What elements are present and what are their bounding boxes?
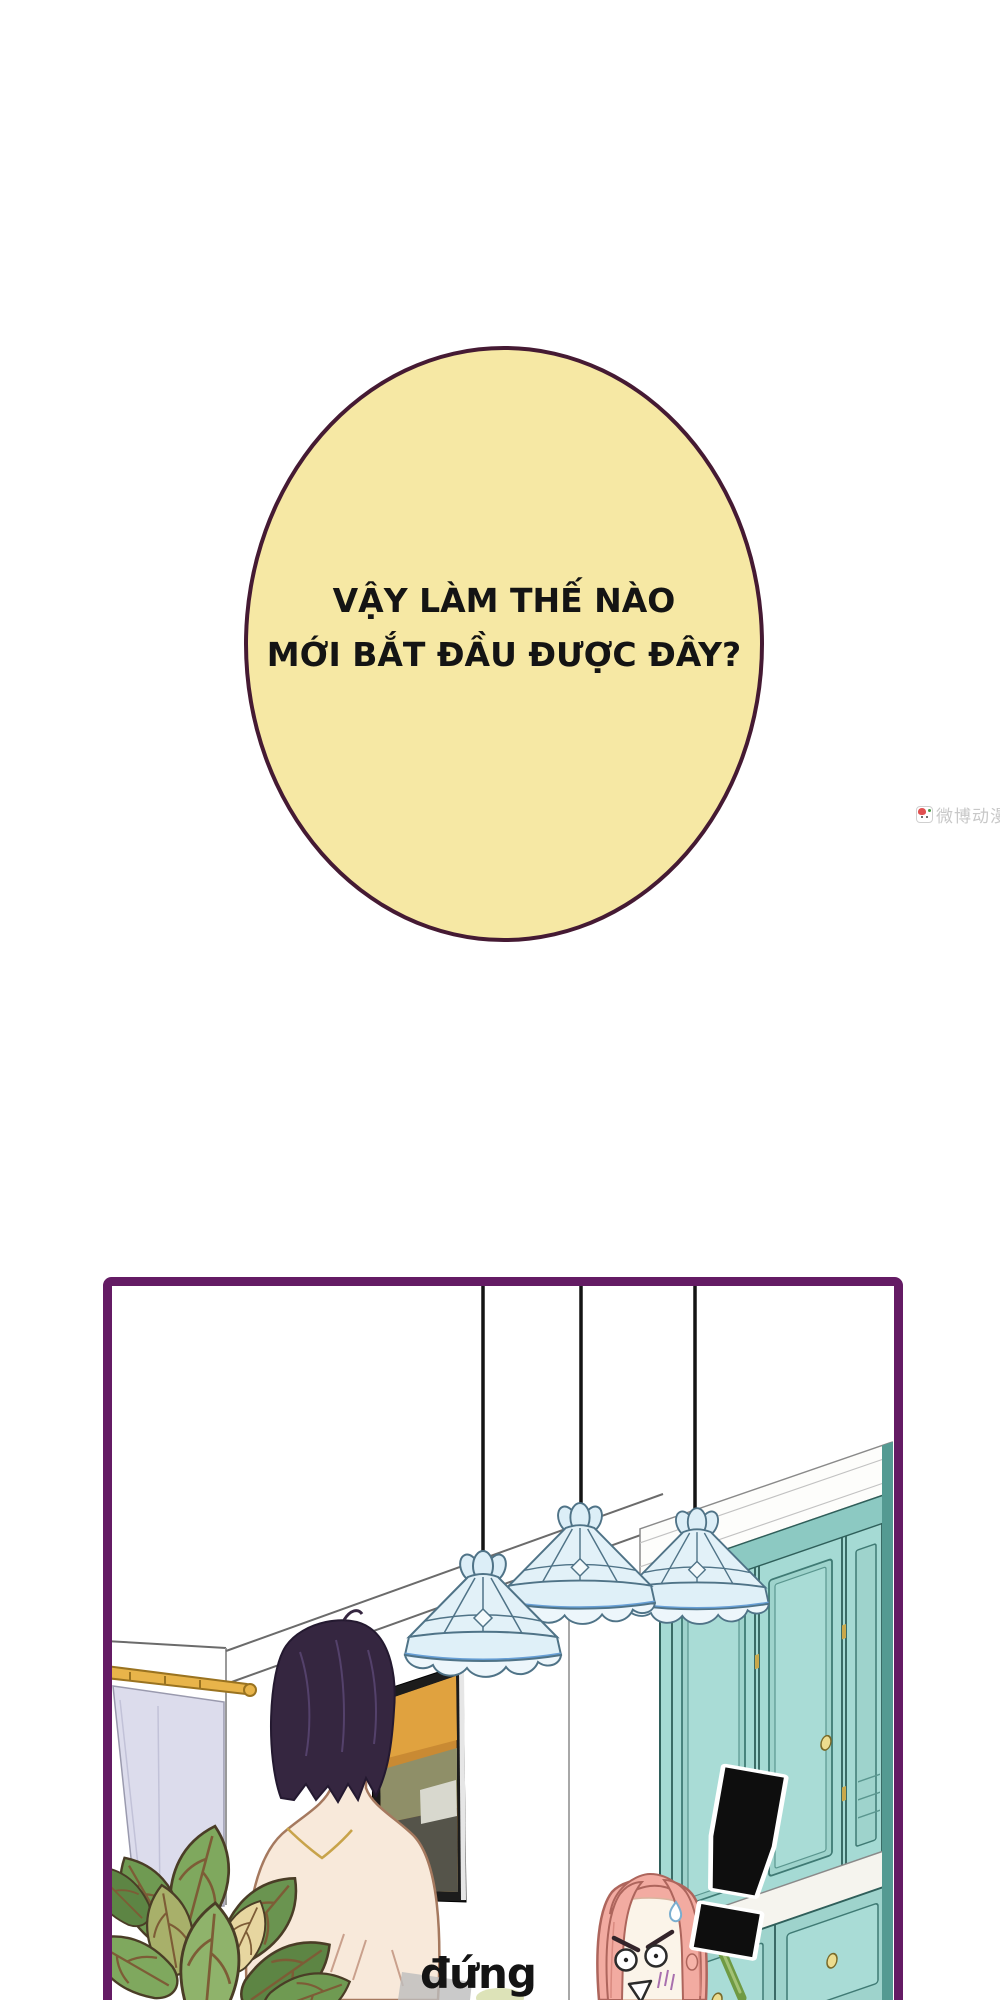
cabinet-hinge	[842, 1624, 846, 1639]
hair-stray-strand	[344, 1611, 362, 1620]
curtain-rod-finial	[244, 1684, 256, 1696]
cabinet-side-panel	[856, 1544, 876, 1847]
cabinet-hinge	[842, 1786, 846, 1801]
comic-panel: ! đứng	[0, 0, 1000, 2000]
sfx-text: đứng	[420, 1949, 536, 1998]
comic-page: { "page": { "width": 1000, "height": 200…	[0, 0, 1000, 2000]
cabinet-hinge	[755, 1654, 759, 1669]
cabinet-shadow-edge	[882, 1442, 893, 2000]
panel-interior: ! đứng	[78, 1286, 893, 2000]
ceiling-line-left	[106, 1641, 226, 1648]
